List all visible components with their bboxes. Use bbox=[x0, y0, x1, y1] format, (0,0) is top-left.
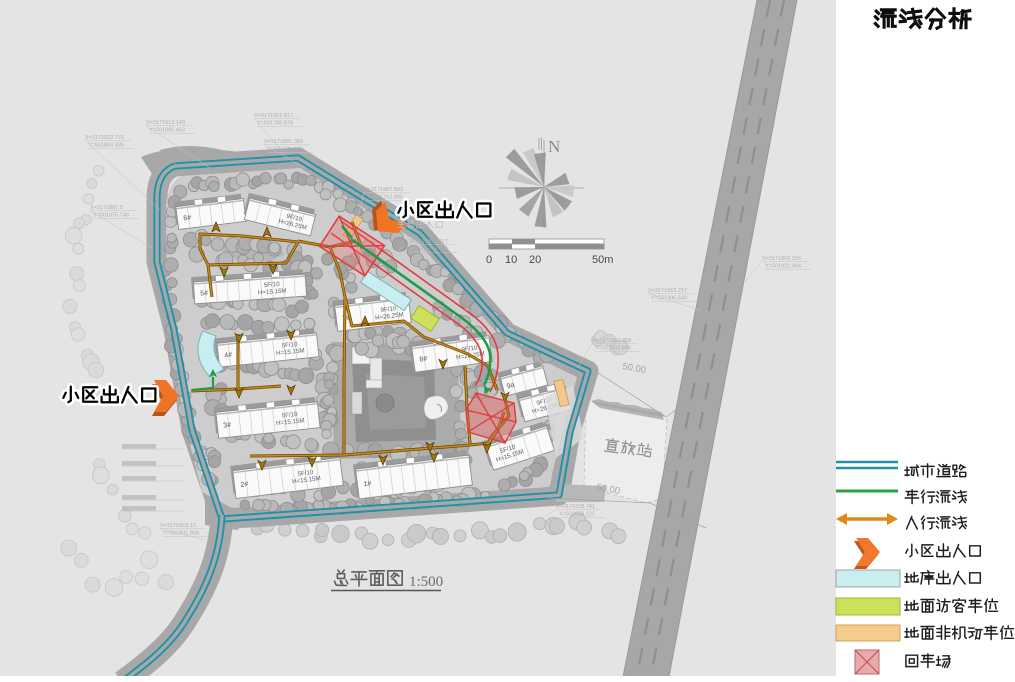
svg-text:Y=501921.964: Y=501921.964 bbox=[765, 264, 801, 270]
svg-text:X=3171919.817: X=3171919.817 bbox=[254, 113, 293, 119]
svg-text:X=3174328.741: X=3174328.741 bbox=[556, 504, 595, 510]
svg-text:20: 20 bbox=[529, 254, 541, 266]
svg-text:6#: 6# bbox=[183, 214, 192, 222]
svg-text:X=3171860.256: X=3171860.256 bbox=[762, 256, 801, 262]
svg-text:X=3171887.503: X=3171887.503 bbox=[364, 187, 403, 193]
svg-text:Y=501788.878: Y=501788.878 bbox=[257, 121, 293, 127]
svg-text:Y=501838.121: Y=501838.121 bbox=[559, 512, 595, 518]
svg-text:1:500: 1:500 bbox=[409, 574, 443, 590]
svg-text:0: 0 bbox=[486, 254, 492, 266]
svg-text:5#: 5# bbox=[200, 290, 208, 298]
svg-text:X=3171913.148: X=3171913.148 bbox=[146, 120, 185, 126]
svg-text:X=3171863.217: X=3171863.217 bbox=[648, 288, 687, 294]
svg-text:4#: 4# bbox=[224, 352, 233, 360]
svg-text:Y=501860.335: Y=501860.335 bbox=[88, 143, 124, 149]
svg-text:Y=501752.895: Y=501752.895 bbox=[367, 195, 403, 201]
svg-text:1#: 1# bbox=[363, 480, 372, 488]
svg-text:Y=501758.527: Y=501758.527 bbox=[412, 247, 448, 253]
svg-text:X=3171922.776: X=3171922.776 bbox=[85, 135, 124, 141]
svg-text:2#: 2# bbox=[240, 481, 249, 489]
svg-text:X=3171887.5: X=3171887.5 bbox=[90, 205, 123, 211]
svg-text:Y=501860.453: Y=501860.453 bbox=[149, 128, 185, 134]
svg-text:N: N bbox=[548, 137, 560, 156]
svg-text:8#: 8# bbox=[419, 356, 428, 364]
svg-text:Y=501849.865: Y=501849.865 bbox=[595, 346, 631, 352]
svg-text:3#: 3# bbox=[223, 422, 232, 430]
svg-text:50m: 50m bbox=[592, 254, 613, 266]
svg-text:X=3171891.389: X=3171891.389 bbox=[264, 139, 303, 145]
svg-text:X=3171832.399: X=3171832.399 bbox=[592, 338, 631, 344]
svg-text:X=3170363.15: X=3170363.15 bbox=[160, 523, 196, 529]
svg-text:X=3171887.417: X=3171887.417 bbox=[409, 239, 448, 245]
svg-text:10: 10 bbox=[505, 254, 517, 266]
svg-text:Y=501801.858: Y=501801.858 bbox=[163, 531, 199, 537]
